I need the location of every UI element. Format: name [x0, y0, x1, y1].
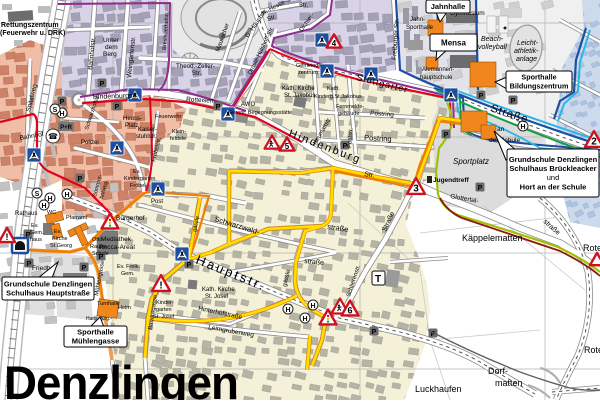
- svg-text:dem: dem: [105, 44, 118, 51]
- svg-text:Mensa: Mensa: [441, 38, 466, 47]
- svg-text:Postring: Postring: [364, 133, 392, 143]
- svg-text:P: P: [187, 262, 192, 269]
- svg-text:☎: ☎: [48, 132, 58, 141]
- svg-text:Str.: Str.: [299, 3, 308, 9]
- svg-text:Schulhaus Brückleacker: Schulhaus Brückleacker: [509, 164, 596, 173]
- svg-text:gebäude: gebäude: [338, 111, 359, 117]
- svg-text:stuhlstr.: stuhlstr.: [136, 134, 157, 140]
- svg-text:hauptschule: hauptschule: [420, 75, 453, 81]
- svg-text:H: H: [59, 111, 64, 118]
- svg-text:Platz: Platz: [125, 123, 138, 129]
- svg-text:Kath. Kirche: Kath. Kirche: [282, 86, 315, 92]
- svg-text:St. Josef: St. Josef: [153, 314, 175, 320]
- svg-text:Rathaus: Rathaus: [15, 211, 37, 217]
- svg-text:Denzlingen: Denzlingen: [4, 356, 238, 400]
- svg-text:Gem.: Gem.: [30, 230, 44, 236]
- svg-text:Sporthalle: Sporthalle: [521, 73, 556, 82]
- svg-text:H: H: [310, 303, 315, 310]
- svg-text:Kindergarten: Kindergarten: [124, 176, 156, 182]
- svg-text:P: P: [372, 329, 377, 336]
- svg-text:Sportplatz: Sportplatz: [453, 157, 489, 166]
- svg-text:Käppelematten: Käppelematten: [462, 233, 523, 243]
- svg-text:matten: matten: [495, 378, 523, 388]
- svg-text:Ev.: Ev.: [54, 229, 62, 235]
- svg-text:Schule: Schule: [92, 251, 109, 257]
- svg-text:Hort an der Schule: Hort an der Schule: [520, 182, 587, 191]
- svg-text:volleyball: volleyball: [478, 44, 507, 51]
- svg-text:an: an: [497, 126, 505, 133]
- svg-text:Fernmelde-: Fernmelde-: [336, 104, 364, 110]
- svg-text:Rocca-Areal: Rocca-Areal: [99, 244, 135, 251]
- svg-text:P: P: [115, 104, 120, 111]
- svg-text:P: P: [479, 93, 484, 100]
- svg-text:Heuss-: Heuss-: [123, 116, 142, 122]
- svg-text:!: !: [159, 281, 162, 292]
- svg-text:Mühlengasse: Mühlengasse: [72, 337, 120, 346]
- svg-text:H: H: [64, 192, 69, 199]
- svg-text:P+R: P+R: [60, 125, 73, 131]
- svg-text:Alemannen-: Alemannen-: [422, 67, 454, 73]
- svg-text:Kinder-: Kinder-: [156, 300, 174, 306]
- svg-text:Schulhaus Hauptstraße: Schulhaus Hauptstraße: [6, 289, 90, 298]
- svg-text:Rettungszentrum: Rettungszentrum: [1, 22, 59, 29]
- svg-text:und: und: [547, 173, 560, 182]
- svg-text:S: S: [35, 191, 40, 198]
- svg-text:P: P: [82, 265, 87, 272]
- svg-text:Sporthalle: Sporthalle: [77, 328, 114, 337]
- svg-text:Ev.: Ev.: [31, 223, 39, 229]
- svg-text:P: P: [444, 132, 449, 139]
- svg-text:WC: WC: [47, 210, 56, 216]
- svg-text:zentrum: zentrum: [298, 70, 318, 76]
- svg-text:(Feuerwehr u. DRK): (Feuerwehr u. DRK): [0, 30, 65, 37]
- svg-text:Polizei: Polizei: [81, 140, 99, 146]
- svg-text:P: P: [216, 104, 221, 111]
- svg-text:Kirche: Kirche: [52, 236, 68, 242]
- svg-text:Kath. Kirche: Kath. Kirche: [202, 287, 235, 293]
- svg-text:Post: Post: [151, 199, 163, 205]
- svg-text:Kinderg.St.Jakobus: Kinderg.St.Jakobus: [314, 94, 362, 100]
- svg-text:P: P: [511, 98, 516, 105]
- svg-text:Grundschule Denzlingen: Grundschule Denzlingen: [4, 280, 93, 289]
- svg-text:athletik-: athletik-: [514, 48, 539, 55]
- svg-text:Bürgerhof: Bürgerhof: [116, 215, 145, 222]
- svg-text:Dorf-: Dorf-: [488, 366, 508, 376]
- svg-text:Feuerwehr: Feuerwehr: [155, 114, 181, 120]
- svg-text:Theod.-Zeller-: Theod.-Zeller-: [176, 63, 215, 70]
- svg-text:Gem.: Gem.: [121, 271, 135, 277]
- svg-text:2: 2: [591, 137, 597, 148]
- svg-text:Bildungszentrum: Bildungszentrum: [510, 81, 569, 90]
- svg-text:Roten: Roten: [583, 243, 600, 253]
- svg-text:P: P: [78, 176, 83, 183]
- svg-text:Klein-: Klein-: [172, 129, 186, 135]
- svg-text:Ev.: Ev.: [133, 169, 141, 175]
- svg-text:H: H: [285, 307, 290, 314]
- svg-text:S: S: [53, 107, 58, 114]
- svg-text:P: P: [27, 261, 32, 268]
- svg-text:Berg: Berg: [103, 51, 117, 58]
- svg-text:Kath.: Kath.: [327, 86, 340, 92]
- svg-text:6: 6: [347, 305, 352, 315]
- svg-text:Pfarramt: Pfarramt: [66, 215, 88, 221]
- svg-text:Kaiser-: Kaiser-: [138, 127, 157, 133]
- svg-text:!: !: [6, 232, 9, 242]
- svg-text:H: H: [41, 203, 46, 210]
- svg-text:Str.: Str.: [192, 70, 202, 77]
- svg-text:H: H: [302, 316, 307, 323]
- svg-text:T: T: [375, 274, 381, 285]
- svg-text:garten: garten: [156, 307, 172, 313]
- svg-text:haus: haus: [30, 237, 42, 243]
- svg-text:Heim: Heim: [118, 305, 131, 311]
- svg-text:Leicht-: Leicht-: [517, 40, 539, 47]
- svg-text:5: 5: [285, 142, 290, 151]
- svg-text:Ev. Freik.: Ev. Freik.: [117, 264, 140, 270]
- svg-text:4: 4: [332, 39, 337, 48]
- svg-text:Jahn-: Jahn-: [410, 17, 425, 23]
- svg-text:Luckhaufen: Luckhaufen: [415, 384, 462, 394]
- svg-text:St.Georg: St.Georg: [50, 243, 72, 249]
- svg-text:Sporthalle: Sporthalle: [406, 25, 434, 31]
- svg-text:Fröbel: Fröbel: [130, 183, 146, 189]
- svg-text:St. Jakobus: St. Jakobus: [284, 93, 315, 99]
- svg-text:Str.: Str.: [364, 171, 375, 179]
- svg-text:Unter: Unter: [103, 37, 120, 44]
- svg-text:Geront. Begegnungsstätte: Geront. Begegnungsstätte: [228, 110, 292, 116]
- svg-text:P: P: [60, 99, 65, 106]
- svg-text:Jahnhalle: Jahnhalle: [431, 2, 466, 11]
- svg-text:Mediathek: Mediathek: [101, 236, 132, 243]
- svg-text:Jugendtreff: Jugendtreff: [433, 177, 470, 184]
- svg-text:anlage: anlage: [516, 56, 537, 63]
- svg-text:P: P: [100, 81, 105, 88]
- svg-text:Gemeinde-: Gemeinde-: [296, 63, 323, 69]
- svg-text:Grundschule Denzlingen: Grundschule Denzlingen: [509, 155, 598, 164]
- svg-text:P: P: [478, 185, 483, 192]
- svg-text:3: 3: [413, 184, 419, 195]
- svg-text:Rote: Rote: [584, 345, 600, 355]
- svg-text:St. Josef: St. Josef: [205, 294, 229, 300]
- svg-text:AWO: AWO: [241, 102, 255, 108]
- svg-text:Beach-: Beach-: [481, 36, 504, 43]
- svg-text:Turnhalle: Turnhalle: [97, 301, 120, 307]
- svg-text:feldele: feldele: [170, 136, 186, 142]
